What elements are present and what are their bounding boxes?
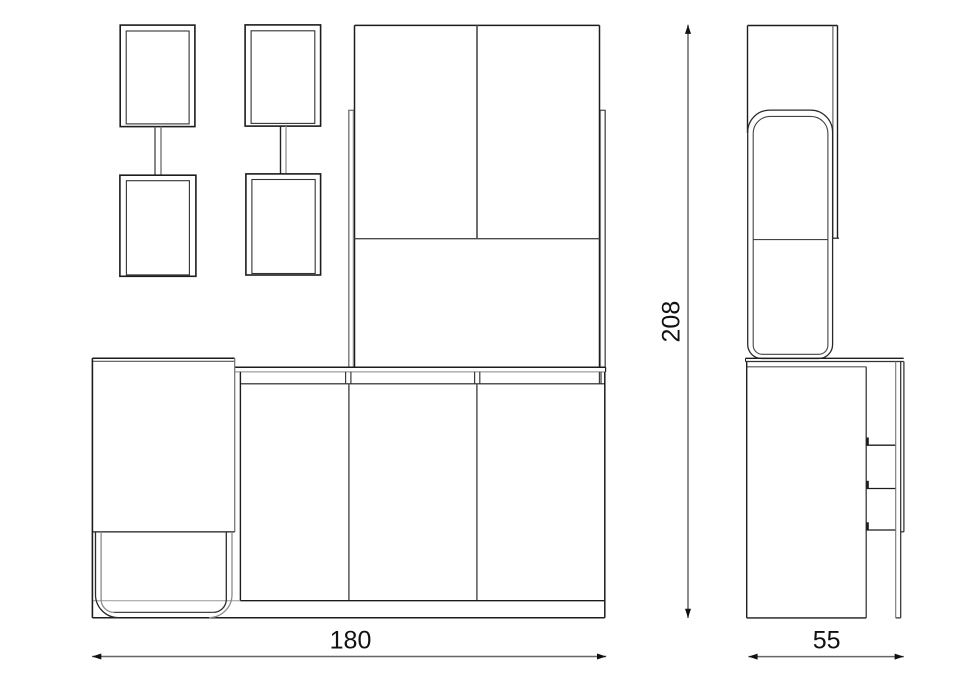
svg-text:208: 208 xyxy=(657,301,685,343)
svg-text:55: 55 xyxy=(813,627,841,655)
svg-text:180: 180 xyxy=(330,627,372,655)
